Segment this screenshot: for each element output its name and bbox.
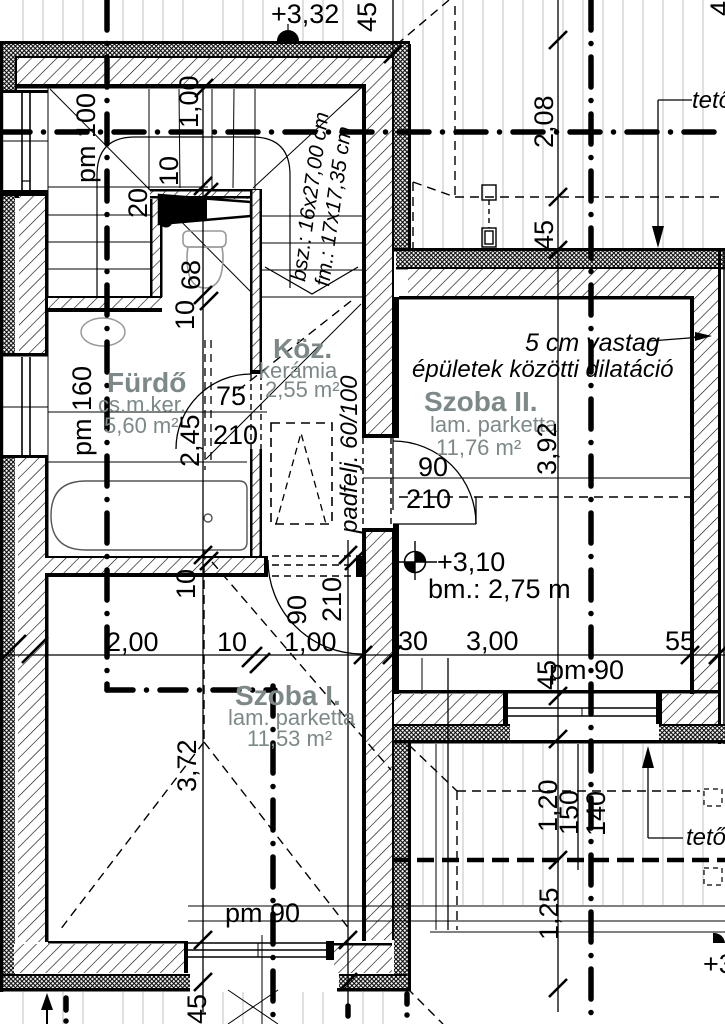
svg-text:pm 90: pm 90 [549, 655, 624, 685]
svg-text:bm.: 2,75 m: bm.: 2,75 m [428, 574, 571, 604]
svg-text:10: 10 [217, 627, 247, 657]
svg-text:90: 90 [282, 595, 312, 625]
svg-text:2,00: 2,00 [106, 627, 159, 657]
svg-text:1,00: 1,00 [284, 627, 337, 657]
svg-text:210: 210 [406, 484, 451, 514]
svg-text:3,00: 3,00 [466, 626, 519, 656]
svg-text:pm 90: pm 90 [225, 898, 300, 928]
svg-text:+3,10: +3,10 [437, 547, 505, 577]
svg-text:150: 150 [554, 790, 584, 835]
svg-text:+3: +3 [703, 949, 725, 979]
svg-text:10: 10 [170, 300, 200, 330]
svg-text:3,92: 3,92 [532, 422, 562, 475]
svg-text:3,72: 3,72 [172, 739, 202, 792]
svg-text:2,45: 2,45 [175, 414, 205, 467]
svg-text:210: 210 [317, 577, 347, 622]
svg-text:5,60 m²: 5,60 m² [104, 413, 179, 438]
svg-text:10: 10 [154, 156, 184, 186]
svg-text:45: 45 [705, 0, 725, 16]
svg-text:45: 45 [352, 2, 382, 32]
svg-text:+3,32: +3,32 [271, 0, 339, 29]
svg-text:padfelj. 60/100: padfelj. 60/100 [336, 375, 363, 534]
svg-text:20: 20 [123, 188, 153, 218]
svg-text:1,25: 1,25 [534, 887, 564, 940]
svg-text:10: 10 [171, 569, 201, 599]
svg-text:90: 90 [418, 452, 448, 482]
svg-text:45: 45 [182, 994, 212, 1024]
svg-text:2,08: 2,08 [529, 95, 559, 148]
svg-text:5 cm vastag: 5 cm vastag [525, 329, 660, 357]
svg-text:épületek közötti dilatáció: épületek közötti dilatáció [412, 356, 674, 383]
svg-text:2,55 m²: 2,55 m² [265, 377, 340, 402]
svg-text:11,53 m²: 11,53 m² [247, 726, 332, 751]
svg-text:140: 140 [581, 791, 611, 836]
svg-text:55: 55 [665, 626, 695, 656]
svg-text:pm 160: pm 160 [67, 366, 97, 456]
svg-text:pm 100: pm 100 [71, 93, 101, 183]
svg-text:210: 210 [213, 420, 258, 450]
svg-text:1,00: 1,00 [174, 75, 204, 128]
svg-text:11,76 m²: 11,76 m² [436, 435, 521, 460]
svg-text:tetők: tetők [686, 824, 725, 851]
svg-text:45: 45 [529, 220, 559, 250]
svg-text:68: 68 [176, 260, 206, 290]
svg-text:tető: tető [692, 87, 725, 114]
svg-text:75: 75 [216, 381, 246, 411]
svg-text:30: 30 [398, 626, 428, 656]
